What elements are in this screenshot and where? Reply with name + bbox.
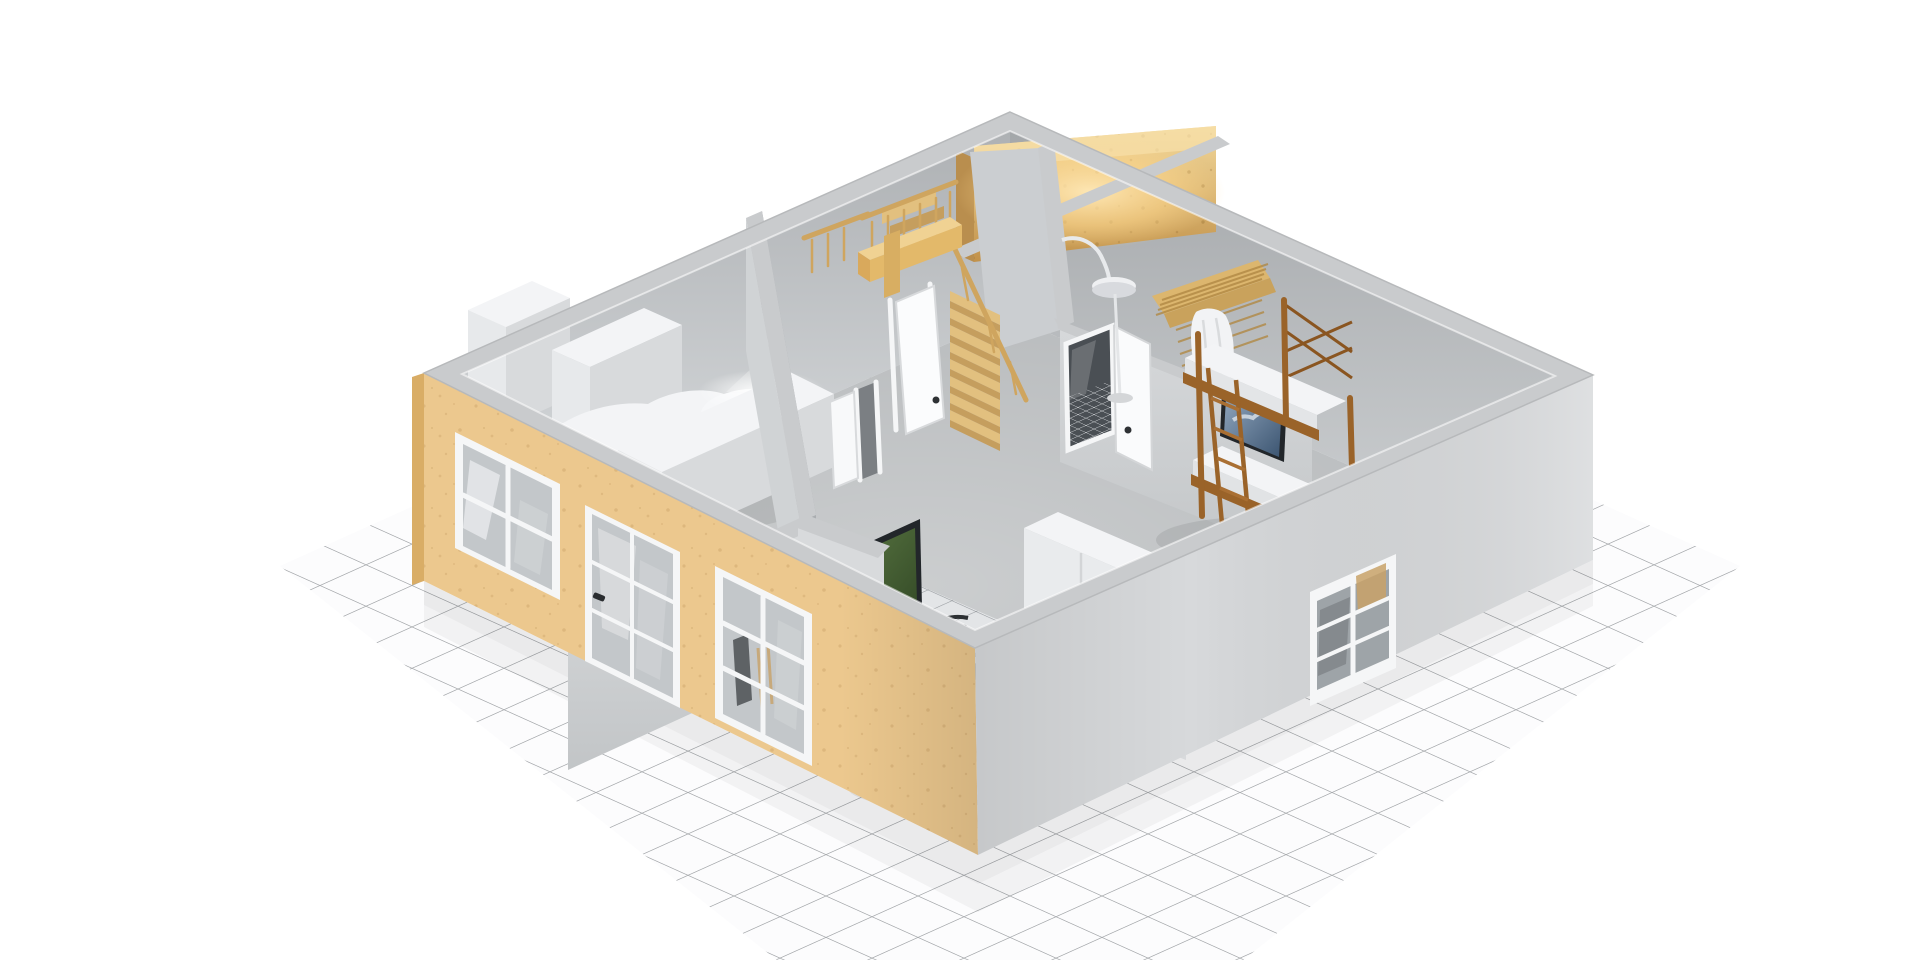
hall-door-handle — [933, 397, 940, 404]
bedroom-door-panel — [830, 392, 858, 488]
floorplan-3d-render — [0, 0, 1920, 960]
newel-post — [884, 230, 900, 298]
floor-lamp-base — [1107, 393, 1133, 403]
bedroom-door — [830, 382, 880, 488]
render-canvas — [0, 0, 1920, 960]
staircase-steps — [950, 291, 1000, 451]
bathroom-door-handle — [1125, 427, 1132, 434]
window-right-interior-dark — [1318, 597, 1350, 676]
wood-wall-end-cap — [412, 373, 424, 585]
